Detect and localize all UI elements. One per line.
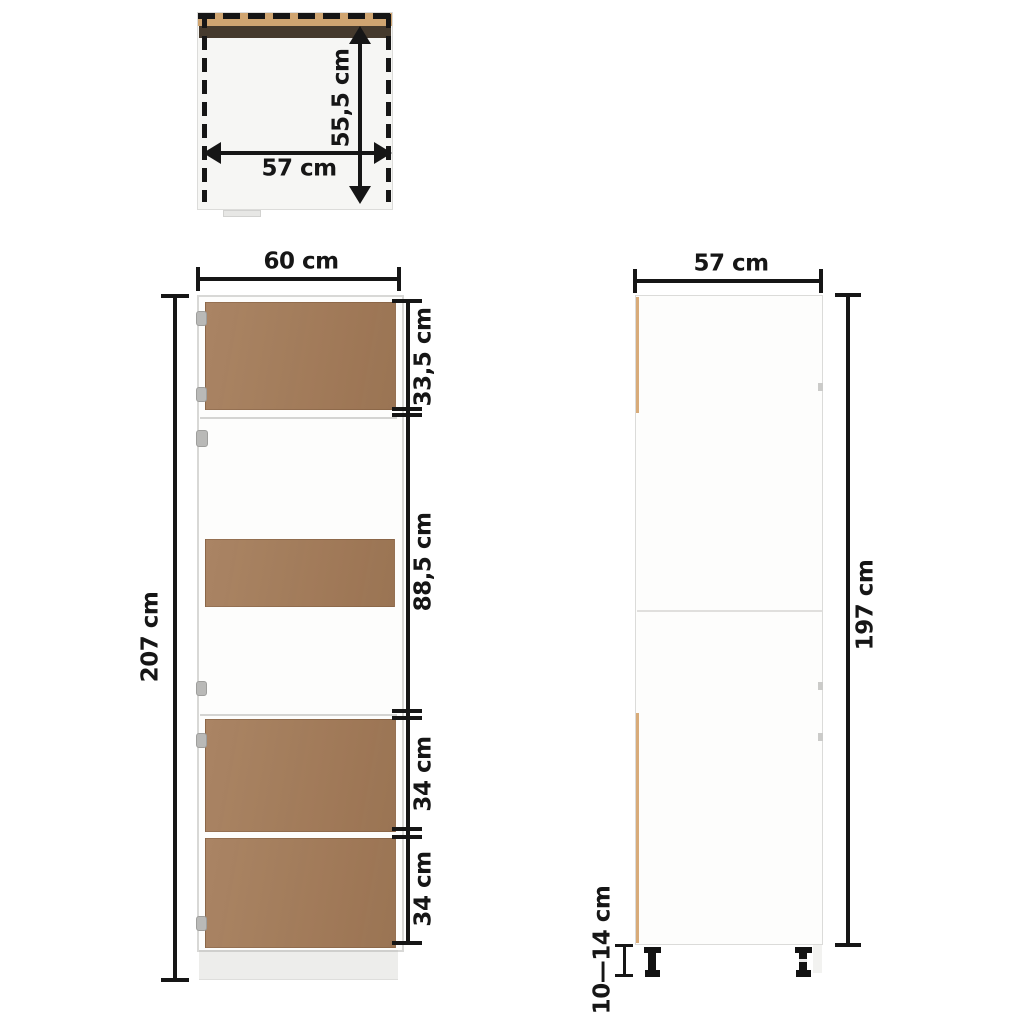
hinge-icon (196, 311, 207, 326)
depth-arrow (358, 42, 362, 188)
side-door-edge-lower (636, 713, 639, 943)
side-height-line (846, 295, 850, 945)
section-tick (392, 407, 422, 411)
front-shelf-line-upper (200, 417, 397, 419)
side-hinge-mark (818, 682, 823, 690)
top-view-dashed-right (386, 14, 391, 202)
front-height-label: 207 cm (140, 592, 163, 683)
depth-arrow-up-icon (349, 26, 371, 44)
feet-height-cap-bottom (615, 974, 633, 977)
top-width-label: 57 cm (261, 158, 336, 181)
side-height-cap-top (835, 293, 861, 297)
side-hinge-mark (818, 383, 823, 391)
front-height-cap-bottom (161, 978, 189, 982)
cabinet-dimension-diagram: 55,5 cm 57 cm 60 cm 207 cm (0, 0, 1024, 1024)
side-width-tick-left (633, 269, 637, 293)
section-tick (392, 835, 422, 839)
front-lower-door-2 (205, 838, 396, 948)
front-width-tick-right (397, 267, 401, 291)
front-section-3-label: 34 cm (413, 736, 436, 811)
top-view-handle-tab (223, 210, 261, 217)
side-back-panel-strip (813, 945, 822, 973)
feet-height-label: 10—14 cm (592, 886, 615, 1015)
top-view-dashed-top (198, 13, 392, 19)
section-tick (392, 941, 422, 945)
side-cabinet-body (635, 295, 823, 945)
section-tick (392, 413, 422, 417)
front-width-label: 60 cm (263, 251, 338, 274)
front-top-door (205, 302, 396, 410)
side-height-label: 197 cm (855, 560, 878, 651)
side-height-cap-bottom (835, 943, 861, 947)
section-tick (392, 709, 422, 713)
top-view-dashed-left (202, 14, 207, 202)
hinge-icon (196, 916, 207, 931)
front-plinth (199, 950, 398, 980)
side-door-edge-upper (636, 297, 639, 413)
depth-arrow-down-icon (349, 186, 371, 204)
section-tick (392, 827, 422, 831)
front-width-tick-left (196, 267, 200, 291)
hinge-icon (196, 681, 207, 696)
side-seam-line (637, 610, 822, 612)
section-tick (392, 299, 422, 303)
side-width-label: 57 cm (693, 253, 768, 276)
front-middle-panel (205, 539, 395, 607)
front-section-4-label: 34 cm (413, 851, 436, 926)
side-hinge-mark (818, 733, 823, 741)
front-section-1-label: 33,5 cm (413, 308, 436, 407)
feet-height-line (623, 946, 626, 976)
front-width-line (198, 277, 399, 281)
top-width-arrow-left-icon (203, 142, 221, 164)
front-height-cap-top (161, 294, 189, 298)
side-width-line (635, 279, 823, 283)
hinge-icon (196, 430, 208, 447)
feet-height-cap-top (615, 944, 633, 947)
front-lower-door-1 (205, 719, 396, 832)
front-section-2-label: 88,5 cm (413, 513, 436, 612)
top-width-arrow (220, 151, 376, 155)
top-depth-label: 55,5 cm (331, 49, 354, 148)
section-tick (392, 716, 422, 720)
top-width-arrow-right-icon (374, 142, 392, 164)
front-sections-line (406, 301, 410, 944)
front-height-line (173, 296, 177, 980)
hinge-icon (196, 387, 207, 402)
side-width-tick-right (819, 269, 823, 293)
hinge-icon (196, 733, 207, 748)
front-shelf-line-lower (200, 714, 397, 716)
